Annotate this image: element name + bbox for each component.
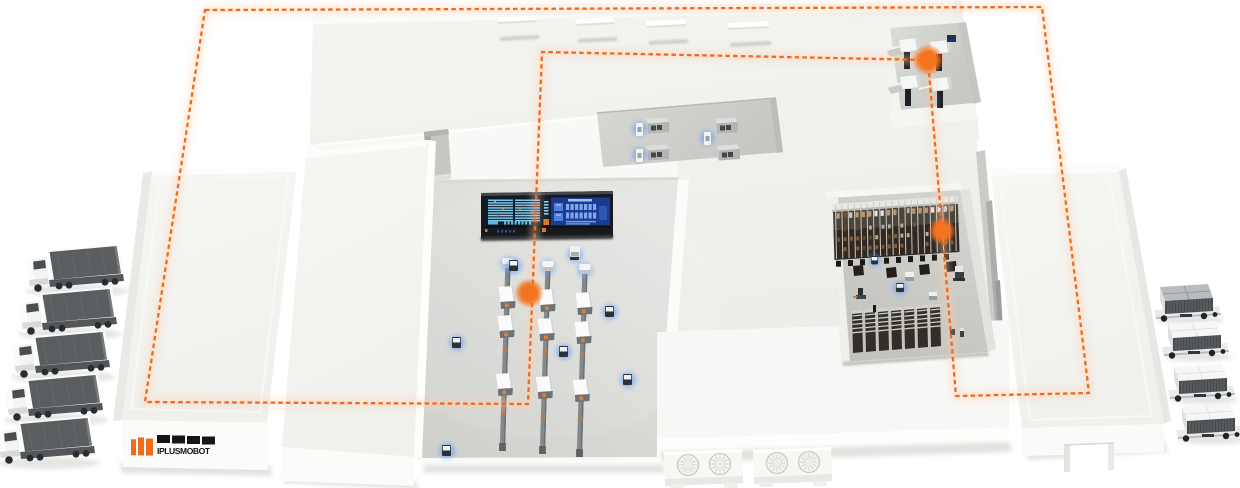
svg-text:IPLUSMOBOT: IPLUSMOBOT: [157, 446, 211, 456]
